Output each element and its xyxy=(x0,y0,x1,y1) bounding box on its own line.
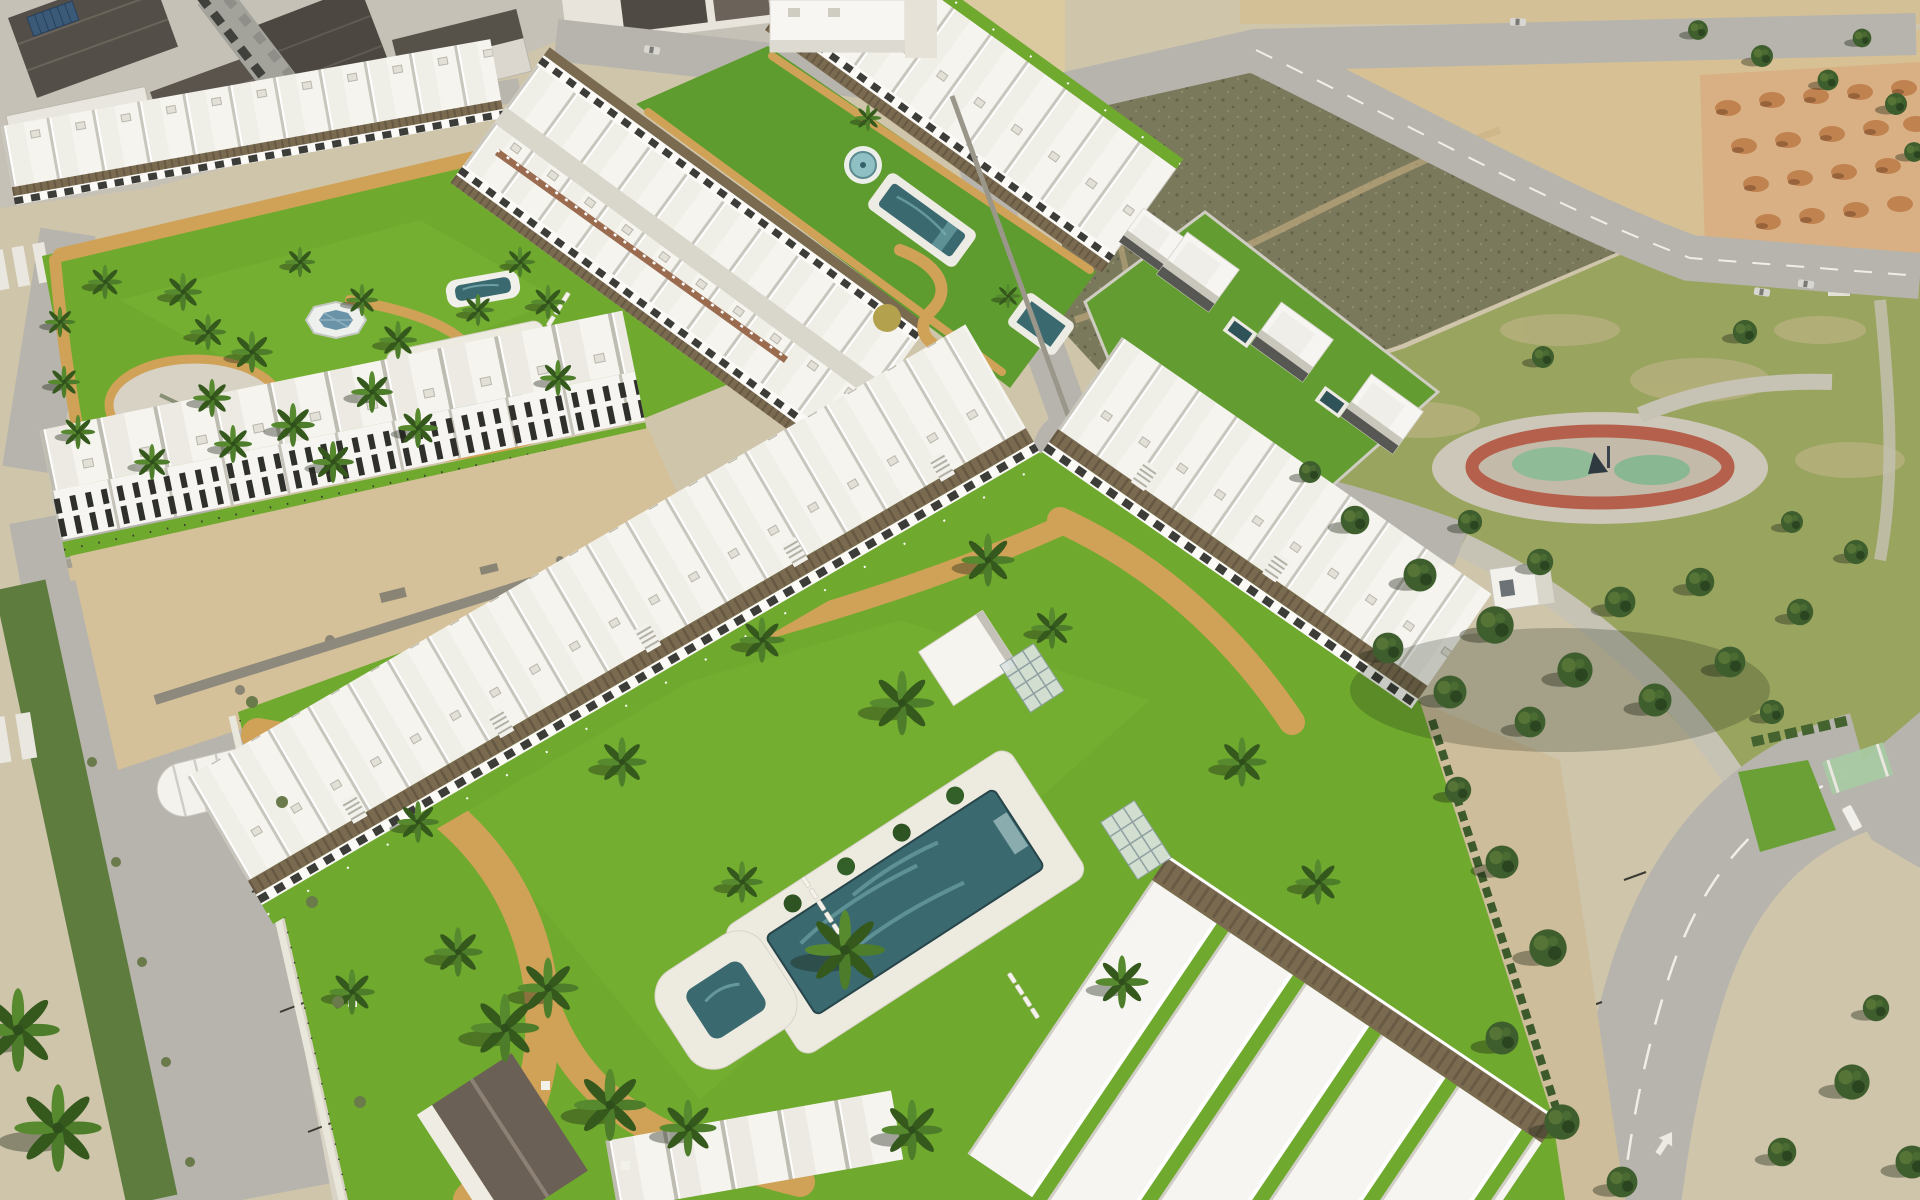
autumn-tree xyxy=(873,304,901,332)
playground xyxy=(1472,431,1728,503)
green-play-pad xyxy=(1614,455,1690,485)
aerial-render xyxy=(0,0,1920,1200)
industrial-building xyxy=(770,0,937,58)
round-fountain xyxy=(844,146,882,184)
scene-canvas xyxy=(0,0,1920,1200)
tree-cluster-shadow xyxy=(1350,628,1770,752)
red-car xyxy=(1510,18,1526,26)
green-play-pad xyxy=(1512,447,1600,481)
